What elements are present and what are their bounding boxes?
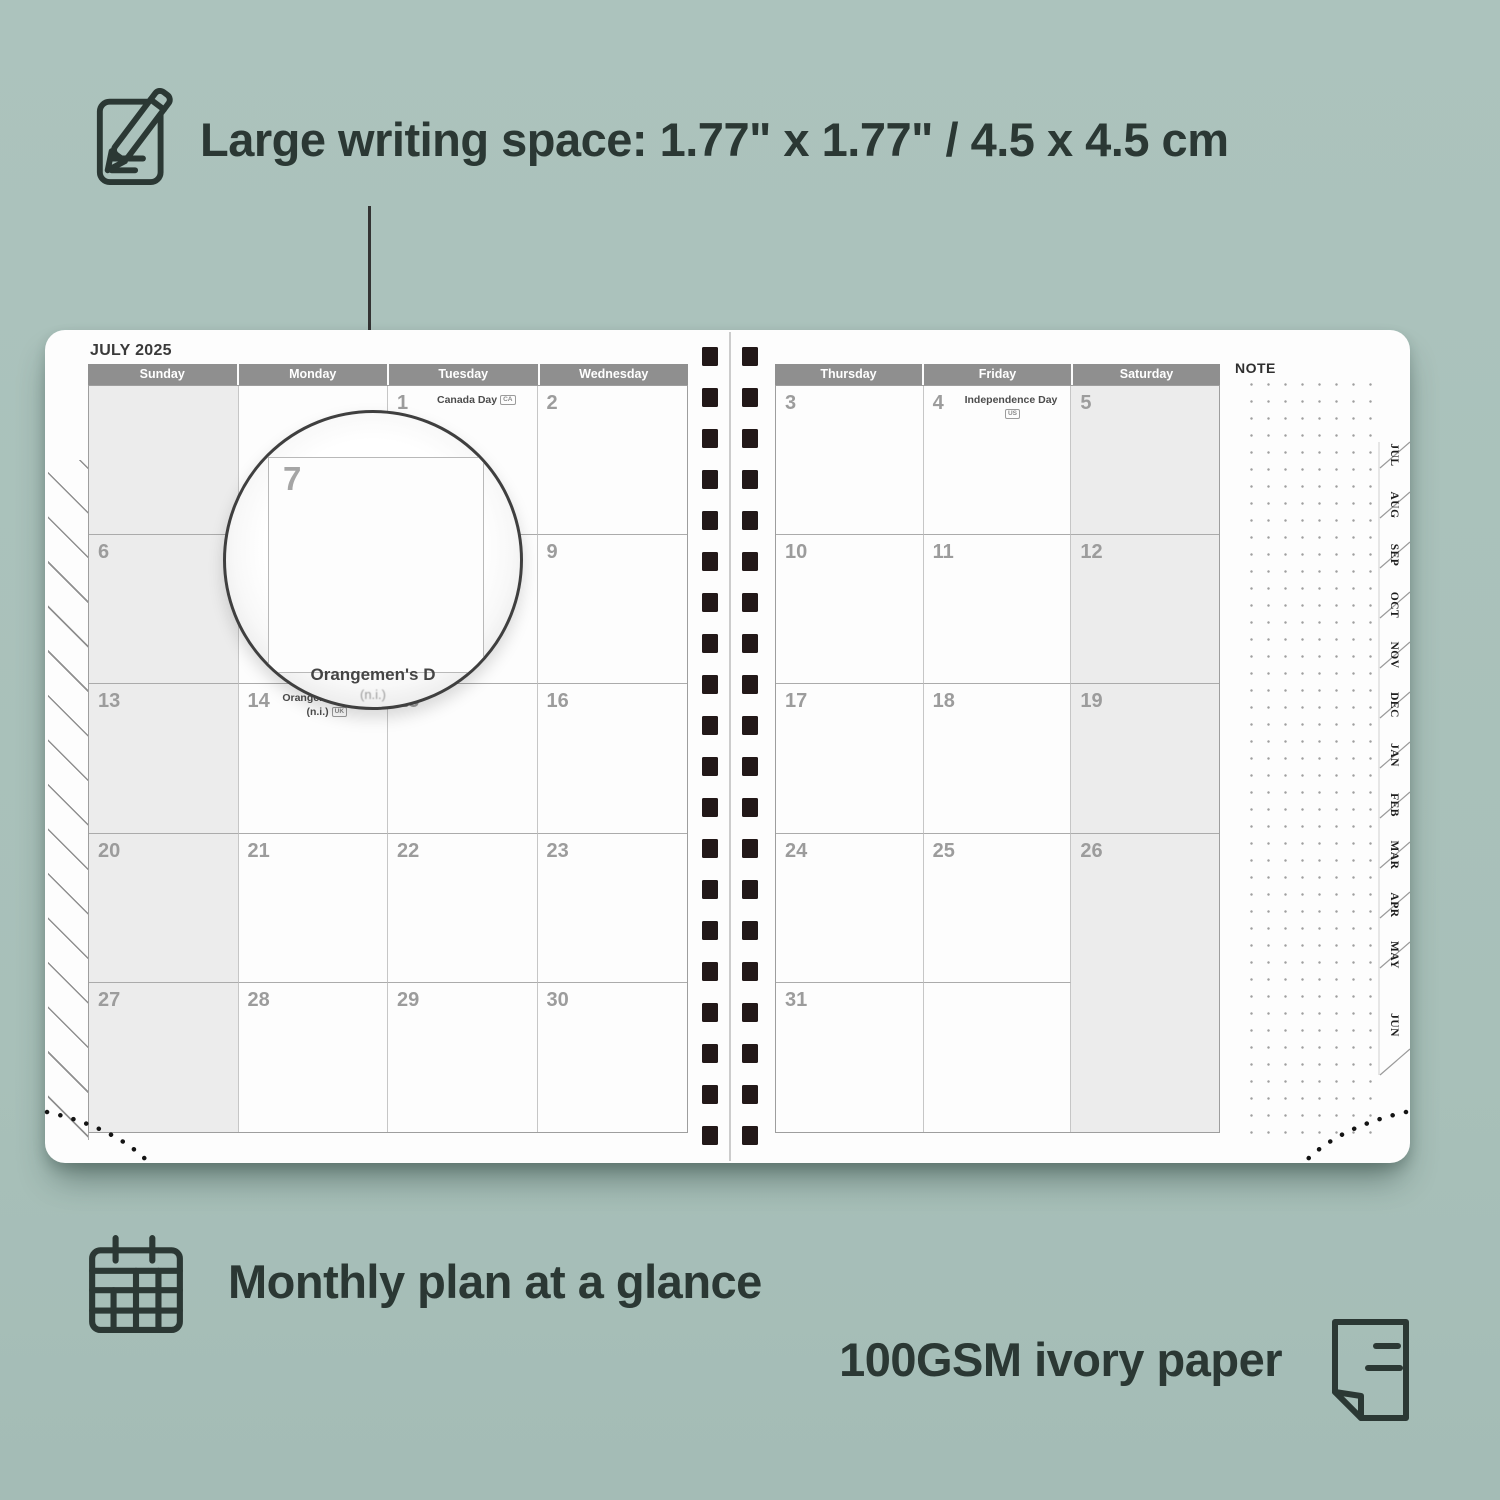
paper-sheet-icon [1320,1314,1420,1426]
magnified-holiday-subtext: (n.i.) [226,687,520,702]
calendar-cell: 26 [1071,834,1219,983]
binding-square [702,798,718,817]
binding-square [742,880,758,899]
date-label: 30 [547,989,569,1012]
date-label: 27 [98,989,120,1012]
calendar-cell: 3 [776,386,924,535]
month-tab-may: MAY [1388,941,1400,969]
calendar-cell [924,983,1072,1132]
binding-square [742,593,758,612]
right-calendar-grid: 34Independence DayUS51011121718192425263… [775,385,1220,1133]
calendar-cell: 29 [388,983,538,1132]
calendar-cell: 4Independence DayUS [924,386,1072,535]
calendar-cell: 11 [924,535,1072,684]
binding-square [702,880,718,899]
binding-square [702,675,718,694]
bottom-right-annotation-text: 100GSM ivory paper [839,1332,1282,1387]
month-tab-sep: SEP [1388,544,1400,567]
binding-square [702,511,718,530]
calendar-cell: 28 [239,983,389,1132]
edge-hatch-decoration [48,460,89,1140]
calendar-cell: 19 [1071,684,1219,833]
tab-separator [1380,1049,1410,1075]
binding-square [742,921,758,940]
binding-square [742,798,758,817]
day-header-tuesday: Tuesday [389,364,538,385]
planner-spread: JULY 2025 SundayMondayTuesdayWednesday 1… [45,330,1410,1163]
calendar-cell: 30 [538,983,688,1132]
calendar-cell: 5 [1071,386,1219,535]
calendar-cell [1071,983,1219,1132]
calendar-cell: 31 [776,983,924,1132]
calendar-cell [89,386,239,535]
date-label: 10 [785,541,807,564]
binding-square [702,839,718,858]
month-tab-oct: OCT [1388,592,1400,618]
binding-square [702,716,718,735]
date-label: 20 [98,840,120,863]
calendar-grid-icon [85,1232,187,1334]
binding-square [702,470,718,489]
calendar-cell: 20 [89,834,239,983]
binding-square [742,429,758,448]
magnified-holiday-text: Orangemen's D [226,665,520,685]
binding-square [702,429,718,448]
day-header-monday: Monday [239,364,388,385]
calendar-cell: 22 [388,834,538,983]
country-badge: UK [332,707,347,717]
date-label: 3 [785,392,796,415]
binding-square [702,634,718,653]
country-badge: CA [500,395,515,405]
binding-square [702,757,718,776]
date-label: 16 [547,690,569,713]
binding-square [702,1003,718,1022]
country-badge: US [1005,409,1020,419]
date-label: 29 [397,989,419,1012]
bottom-left-annotation-text: Monthly plan at a glance [228,1254,762,1309]
top-annotation-text: Large writing space: 1.77" x 1.77" / 4.5… [200,112,1228,167]
month-tab-dec: DEC [1388,692,1400,718]
date-label: 13 [98,690,120,713]
day-header-friday: Friday [924,364,1071,385]
calendar-cell: 15 [388,684,538,833]
magnified-writing-cell: 7 [268,457,484,673]
binding-square [742,1044,758,1063]
date-label: 11 [933,541,954,564]
calendar-cell: 24 [776,834,924,983]
binding-square [702,593,718,612]
calendar-cell: 9 [538,535,688,684]
month-tab-jan: JAN [1388,743,1400,767]
note-label: NOTE [1235,360,1284,376]
calendar-cell: 21 [239,834,389,983]
spiral-binding-left-column [702,347,718,1147]
binding-square [702,1126,718,1145]
date-label: 25 [933,840,955,863]
binding-square [742,347,758,366]
calendar-cell: 6 [89,535,239,684]
day-header-sunday: Sunday [88,364,237,385]
date-label: 28 [248,989,270,1012]
date-label: 22 [397,840,419,863]
month-tab-apr: APR [1388,892,1400,917]
spiral-binding-right-column [742,347,758,1147]
calendar-cell: 12 [1071,535,1219,684]
binding-square [742,1003,758,1022]
binding-square [702,962,718,981]
binding-square [702,552,718,571]
binding-square [742,634,758,653]
binding-square [742,388,758,407]
magnifier-circle: 7 Orangemen's D (n.i.) [223,410,523,710]
month-tab-mar: MAR [1388,841,1400,870]
date-label: 24 [785,840,807,863]
magnified-date: 7 [283,460,301,498]
note-dot-grid [1243,376,1384,1135]
binding-square [742,552,758,571]
binding-square [742,839,758,858]
date-label: 2 [547,392,558,415]
binding-square [702,388,718,407]
calendar-cell: 13 [89,684,239,833]
date-label: 6 [98,541,109,564]
binding-square [702,921,718,940]
date-label: 23 [547,840,569,863]
date-label: 12 [1080,541,1102,564]
right-day-headers: ThursdayFridaySaturday [775,364,1220,385]
month-tab-aug: AUG [1388,491,1400,518]
binding-square [742,962,758,981]
binding-square [702,1085,718,1104]
page-divider-line [729,332,731,1161]
calendar-cell: 2 [538,386,688,535]
date-label: 9 [547,541,558,564]
binding-square [742,511,758,530]
month-tabs-index: JULAUGSEPOCTNOVDECJANFEBMARAPRMAYJUN [1377,428,1413,1088]
binding-square [742,470,758,489]
date-label: 19 [1080,690,1102,713]
binding-square [742,1126,758,1145]
calendar-cell: 25 [924,834,1072,983]
day-header-thursday: Thursday [775,364,922,385]
date-label: 17 [785,690,807,713]
month-tab-jul: JUL [1388,443,1400,466]
binding-square [742,1085,758,1104]
month-tab-jun: JUN [1388,1013,1400,1037]
month-tab-feb: FEB [1388,793,1400,817]
left-day-headers: SundayMondayTuesdayWednesday [88,364,688,385]
date-label: 18 [933,690,955,713]
calendar-cell: 27 [89,983,239,1132]
holiday-label: Independence DayUS [956,394,1067,421]
note-pencil-icon [92,80,190,188]
binding-square [702,1044,718,1063]
date-label: 31 [785,989,807,1012]
calendar-cell: 23 [538,834,688,983]
calendar-cell: 17 [776,684,924,833]
day-header-wednesday: Wednesday [540,364,689,385]
binding-square [742,716,758,735]
calendar-cell: 18 [924,684,1072,833]
holiday-label: Canada DayCA [420,394,533,408]
binding-square [702,347,718,366]
product-image: Large writing space: 1.77" x 1.77" / 4.5… [0,0,1500,1500]
binding-square [742,757,758,776]
date-label: 26 [1080,840,1102,863]
date-label: 21 [248,840,270,863]
binding-square [742,675,758,694]
day-header-saturday: Saturday [1073,364,1220,385]
date-label: 4 [933,392,944,415]
calendar-cell: 10 [776,535,924,684]
month-tab-nov: NOV [1388,641,1400,668]
date-label: 5 [1080,392,1091,415]
calendar-cell: 16 [538,684,688,833]
month-title: JULY 2025 [90,342,172,360]
